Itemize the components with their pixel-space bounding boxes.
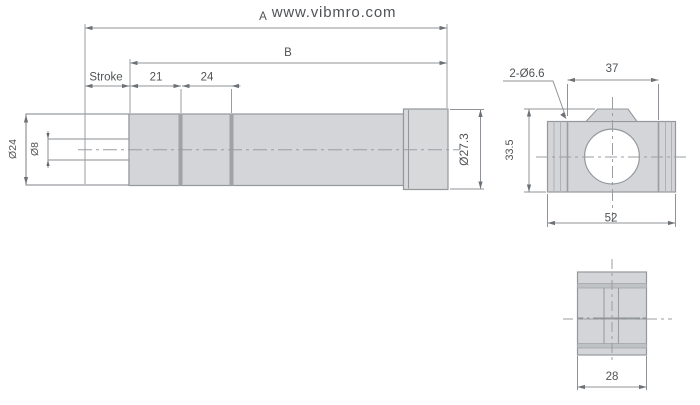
svg-text:2-Ø6.6: 2-Ø6.6 xyxy=(509,68,544,80)
svg-text:21: 21 xyxy=(150,72,163,84)
svg-text:Ø27.3: Ø27.3 xyxy=(457,133,471,166)
svg-text:37: 37 xyxy=(606,63,619,75)
svg-text:A: A xyxy=(259,11,267,23)
svg-text:24: 24 xyxy=(201,72,214,84)
svg-text:28: 28 xyxy=(606,371,619,383)
svg-text:B: B xyxy=(284,47,292,59)
svg-text:33.5: 33.5 xyxy=(504,139,516,160)
svg-text:Stroke: Stroke xyxy=(89,72,122,84)
svg-text:www.vibmro.com: www.vibmro.com xyxy=(271,4,397,21)
svg-text:52: 52 xyxy=(605,213,618,225)
svg-text:Ø24: Ø24 xyxy=(7,139,19,159)
svg-text:Ø8: Ø8 xyxy=(29,142,41,156)
